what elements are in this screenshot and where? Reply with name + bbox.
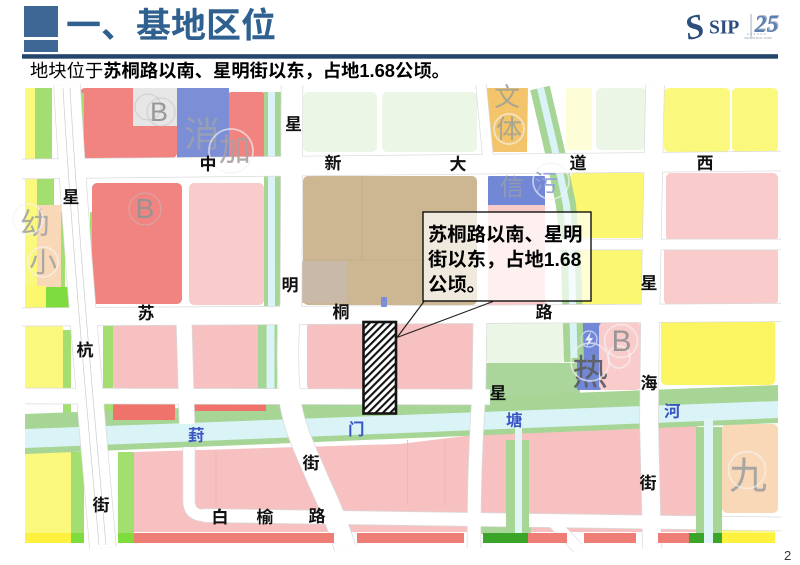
svg-text:INDUSTRIAL PARK: INDUSTRIAL PARK bbox=[744, 36, 772, 40]
svg-text:B: B bbox=[150, 97, 168, 127]
svg-text:S: S bbox=[681, 7, 708, 47]
svg-text:2: 2 bbox=[784, 548, 791, 563]
svg-text:1.68: 1.68 bbox=[544, 250, 582, 271]
svg-text:1.68: 1.68 bbox=[359, 60, 395, 81]
svg-text:SIP: SIP bbox=[709, 18, 739, 39]
svg-text:B: B bbox=[136, 193, 155, 224]
svg-text:B: B bbox=[611, 325, 631, 358]
